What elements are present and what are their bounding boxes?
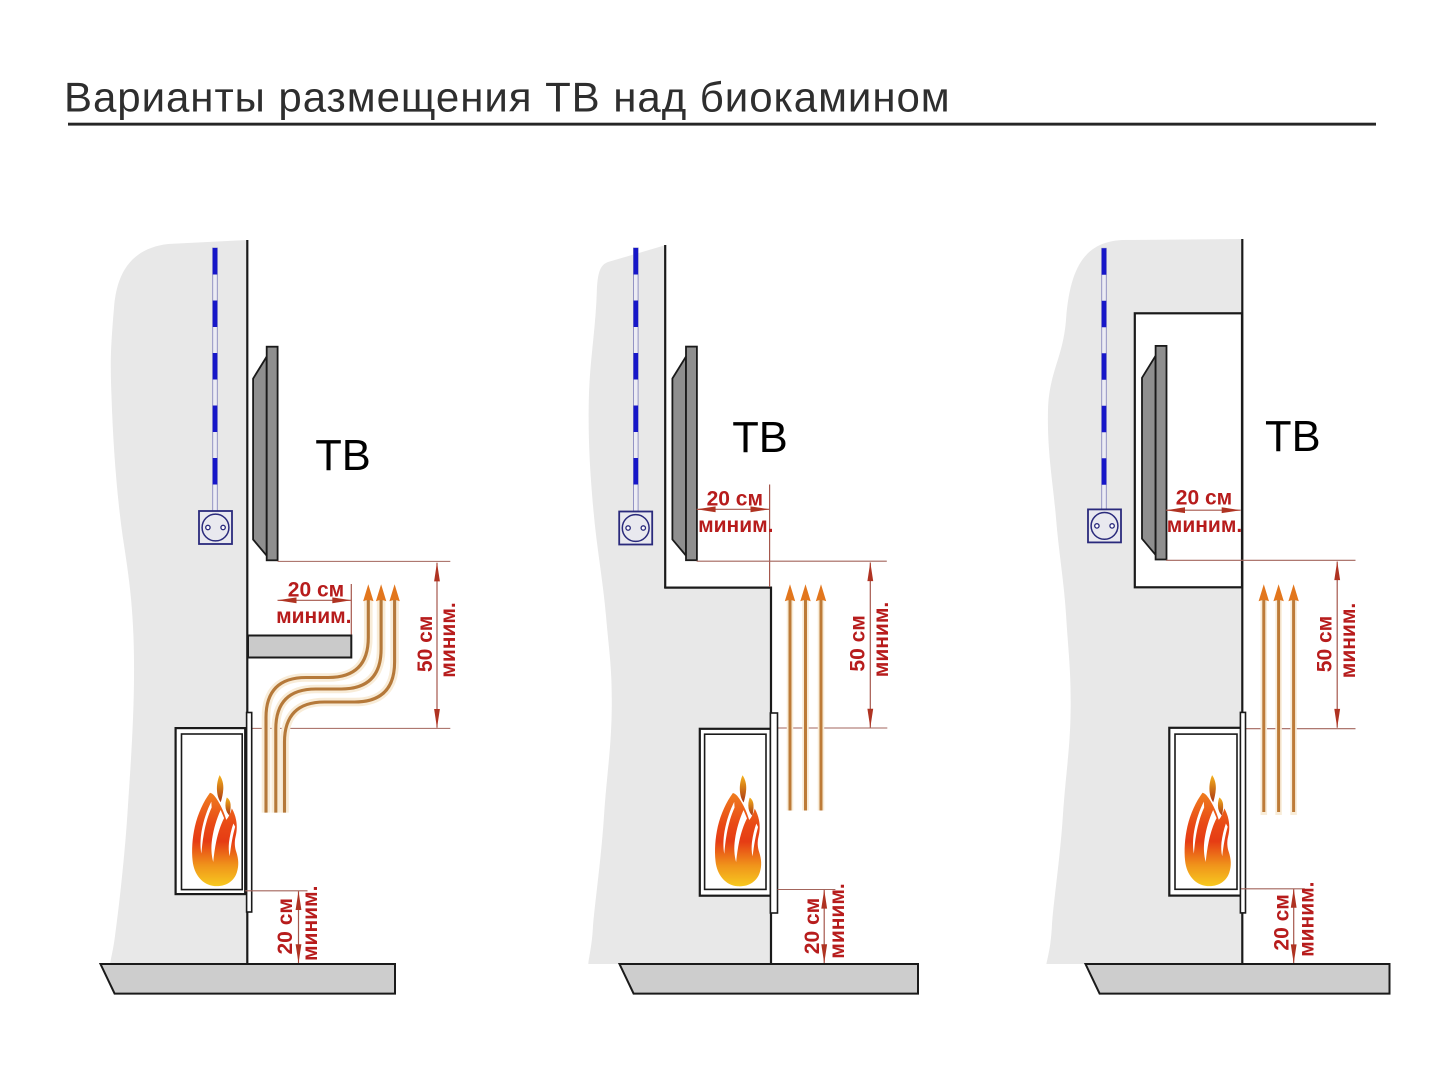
svg-text:ТВ: ТВ bbox=[732, 414, 788, 462]
svg-text:миним.: миним. bbox=[1167, 514, 1242, 537]
svg-text:миним.: миним. bbox=[698, 514, 773, 537]
svg-text:ТВ: ТВ bbox=[315, 432, 371, 480]
svg-text:миним.: миним. bbox=[870, 602, 893, 677]
svg-text:20 см: 20 см bbox=[707, 487, 763, 510]
svg-text:миним.: миним. bbox=[826, 883, 849, 958]
svg-text:50 см: 50 см bbox=[414, 616, 437, 672]
svg-text:20 см: 20 см bbox=[288, 579, 344, 602]
svg-text:20 см: 20 см bbox=[801, 898, 824, 954]
svg-text:20 см: 20 см bbox=[1176, 486, 1232, 509]
svg-text:миним.: миним. bbox=[1337, 603, 1360, 678]
svg-text:миним.: миним. bbox=[437, 602, 460, 677]
svg-text:ТВ: ТВ bbox=[1265, 413, 1321, 461]
svg-text:50 см: 50 см bbox=[1314, 616, 1337, 672]
svg-text:миним.: миним. bbox=[276, 605, 351, 628]
svg-text:миним.: миним. bbox=[299, 886, 322, 961]
svg-text:20 см: 20 см bbox=[1270, 894, 1293, 950]
svg-text:миним.: миним. bbox=[1296, 881, 1319, 956]
svg-text:Варианты размещения ТВ над био: Варианты размещения ТВ над биокамином bbox=[64, 74, 951, 121]
svg-text:50 см: 50 см bbox=[847, 615, 870, 671]
svg-text:20 см: 20 см bbox=[274, 898, 297, 954]
